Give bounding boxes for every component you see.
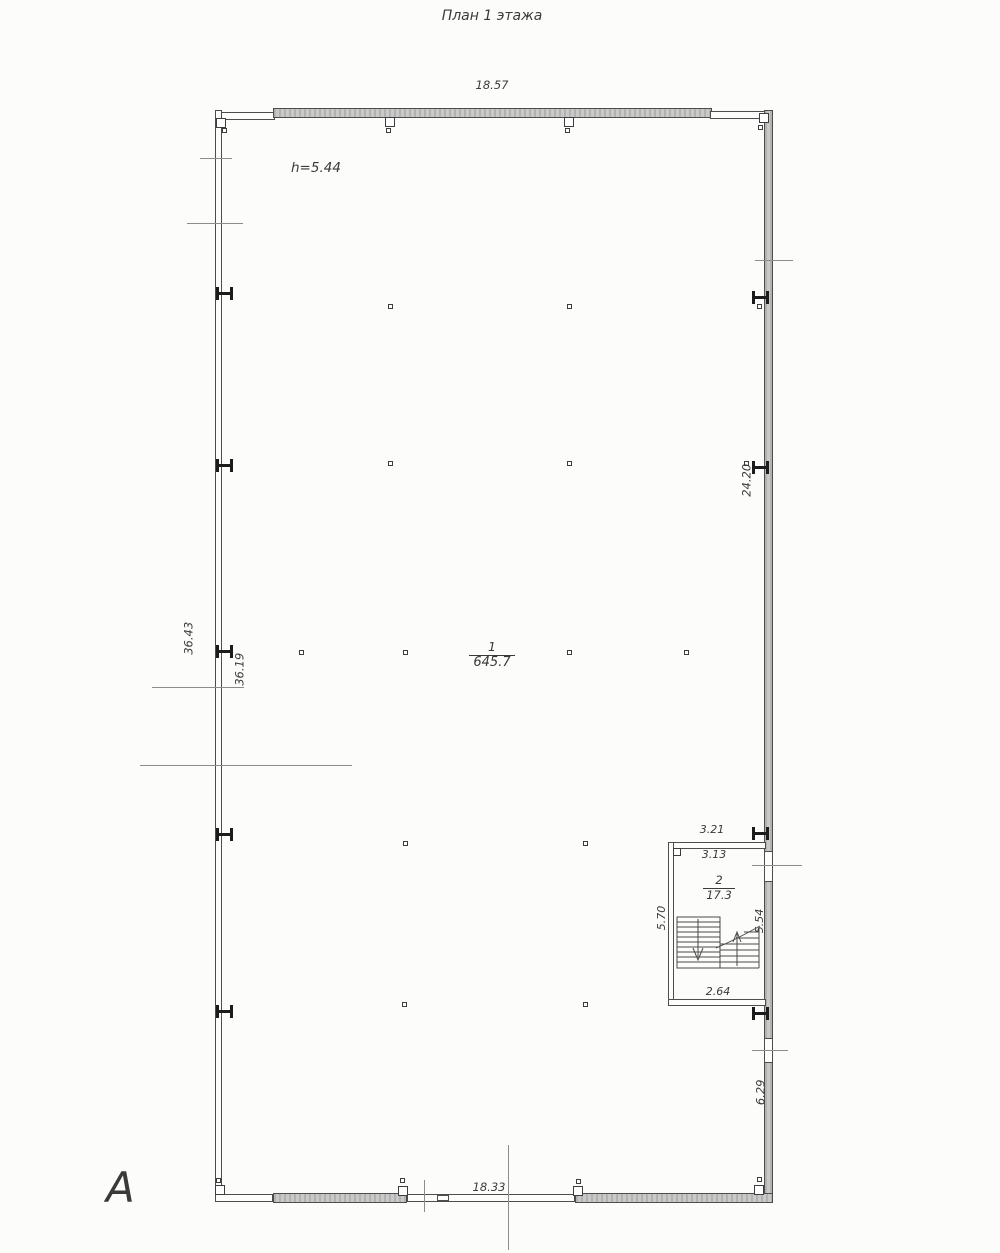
ceiling-height-label: h=5.44 <box>291 161 341 176</box>
window-right-upper <box>764 851 773 882</box>
steel-column-icon <box>216 828 233 841</box>
column-marker <box>573 1186 583 1196</box>
column-marker <box>564 117 574 127</box>
column-marker <box>398 1186 408 1196</box>
interior-column <box>388 461 393 466</box>
dim-tick <box>187 223 243 224</box>
steel-column-icon <box>216 287 233 300</box>
wall-bottom-mid-segment <box>407 1194 575 1202</box>
dim-stair-width-inner: 3.13 <box>694 849 734 861</box>
column-marker <box>385 117 395 127</box>
column-marker <box>754 1185 764 1195</box>
interior-column <box>388 304 393 309</box>
column-marker <box>216 118 226 128</box>
floor-plan-sheet: План 1 этажа 18.57 h=5.44 <box>0 0 1000 1253</box>
column-dot <box>757 304 762 309</box>
axis-label: А <box>106 1165 135 1211</box>
steel-column-icon <box>216 459 233 472</box>
dim-stair-width-outer: 3.21 <box>692 824 732 836</box>
dim-tick <box>424 1180 425 1212</box>
steel-column-icon <box>216 645 233 658</box>
steel-column-icon <box>216 1005 233 1018</box>
dim-tick <box>200 158 232 159</box>
dim-tick <box>752 865 802 866</box>
stairs-drawing <box>668 908 772 1008</box>
column-dot <box>757 1177 762 1182</box>
interior-column <box>583 1002 588 1007</box>
dim-left-outer: 36.43 <box>183 608 196 668</box>
dim-tick <box>755 260 793 261</box>
interior-column <box>684 650 689 655</box>
interior-column <box>583 841 588 846</box>
steel-column-icon <box>752 827 769 840</box>
column-marker <box>215 1185 225 1195</box>
column-dot <box>222 128 227 133</box>
column-marker <box>759 113 769 123</box>
wall-bottom-hatched-right <box>575 1193 773 1203</box>
stairwell-corner-column <box>673 848 681 856</box>
room-number: 1 <box>460 640 524 654</box>
room-label-main: 1 645.7 <box>460 640 524 670</box>
dim-tick <box>508 1145 509 1250</box>
dim-bottom-width: 18.33 <box>461 1181 517 1194</box>
dim-stair-depth-left: 5.70 <box>656 888 668 948</box>
dim-left-inner: 36.19 <box>234 639 247 699</box>
interior-column <box>403 841 408 846</box>
column-dot <box>576 1179 581 1184</box>
interior-column <box>402 1002 407 1007</box>
room-area: 645.7 <box>460 656 524 670</box>
room-label-stairwell: 2 17.3 <box>700 874 738 901</box>
interior-column <box>567 461 572 466</box>
page-title: План 1 этажа <box>437 9 547 24</box>
wall-bottom-hatched-left <box>273 1193 407 1203</box>
column-dot <box>758 125 763 130</box>
wall-bottom-left-segment <box>215 1194 273 1202</box>
wall-top-hatched <box>273 108 712 118</box>
dim-tick <box>152 687 244 688</box>
dim-tick <box>140 765 352 766</box>
interior-column <box>567 304 572 309</box>
column-dot <box>216 1178 221 1183</box>
wall-bottom-jog <box>437 1195 449 1201</box>
dim-top-width: 18.57 <box>463 79 521 92</box>
room-number: 2 <box>700 874 738 887</box>
dim-right-lower: 6.29 <box>755 1062 768 1122</box>
column-dot <box>400 1178 405 1183</box>
dim-right-height: 24.20 <box>741 450 754 510</box>
dim-tick <box>752 1050 788 1051</box>
room-area: 17.3 <box>700 889 738 902</box>
column-dot <box>565 128 570 133</box>
interior-column <box>299 650 304 655</box>
interior-column <box>567 650 572 655</box>
steel-column-icon <box>752 291 769 304</box>
steel-column-icon <box>752 461 769 474</box>
column-dot <box>386 128 391 133</box>
interior-column <box>403 650 408 655</box>
steel-column-icon <box>752 1007 769 1020</box>
